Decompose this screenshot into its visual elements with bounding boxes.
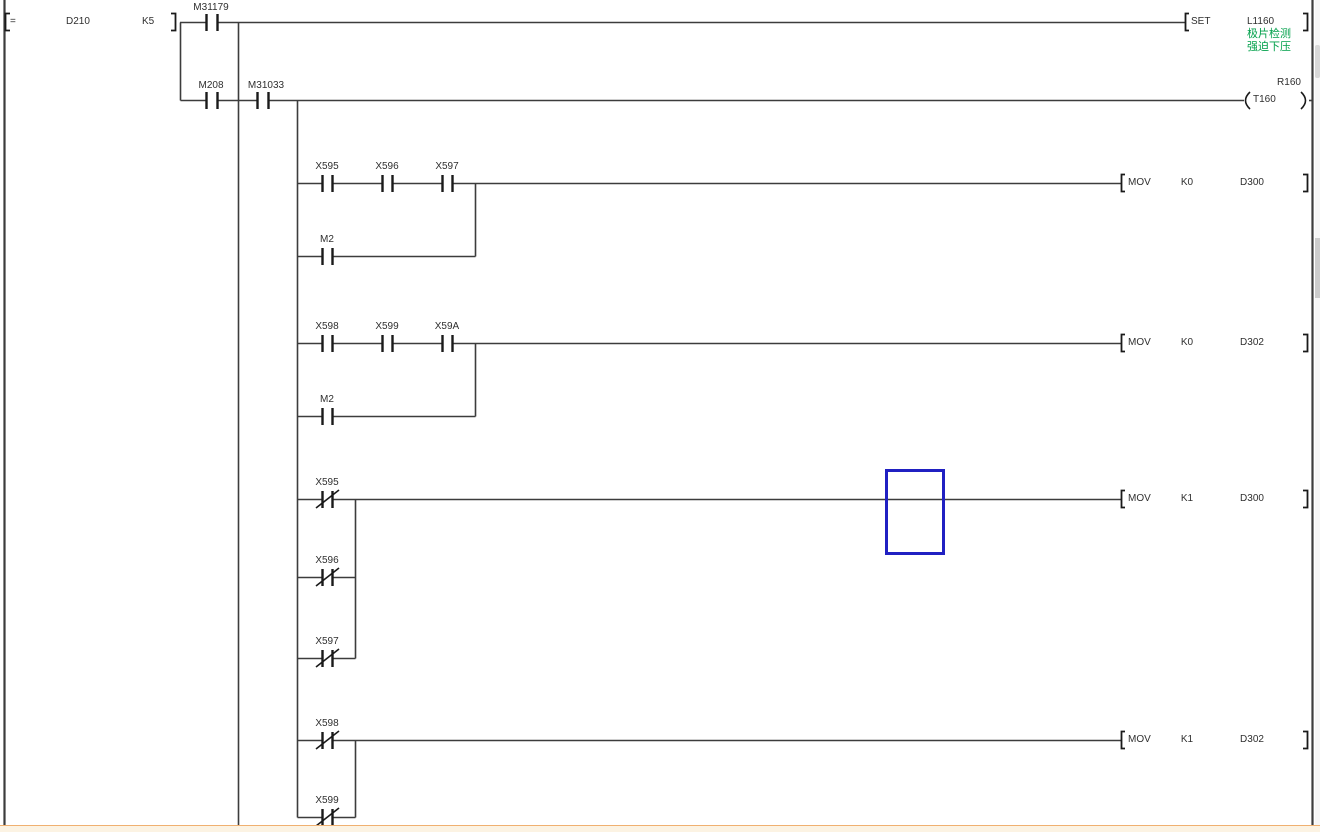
mov3-src[interactable]: K1 [1181,493,1193,505]
contact-m2-a[interactable] [323,248,333,265]
contact-x59a-no[interactable] [443,335,453,352]
device-comment-line1: 极片检测 [1247,28,1291,41]
mov2-src[interactable]: K0 [1181,337,1193,349]
vertical-scrollbar[interactable] [1315,0,1320,832]
contact-label-m31179[interactable]: M31179 [193,2,228,14]
coil-comment-r160: R160 [1277,77,1301,89]
compare-arg2[interactable]: K5 [142,16,154,28]
device-comment-line2: 强迫下压 [1247,41,1291,54]
mov4-src[interactable]: K1 [1181,734,1193,746]
contact-label-x596[interactable]: X596 [375,161,398,173]
contact-label-x598-nc[interactable]: X598 [315,718,338,730]
contact-label-x598[interactable]: X598 [315,321,338,333]
contact-x599-no[interactable] [383,335,393,352]
mov1-instruction[interactable]: MOV [1128,177,1151,189]
contact-x598-no[interactable] [323,335,333,352]
scrollbar-thumb[interactable] [1315,45,1320,78]
power-rails [5,0,1313,826]
compare-arg1[interactable]: D210 [66,16,90,28]
contact-label-m208[interactable]: M208 [198,80,223,92]
bottom-pane-edge [0,825,1320,832]
mov2-dst[interactable]: D302 [1240,337,1264,349]
rung-wires [180,23,1312,827]
ladder-editor-view: = D210 K5 M31179 SET L1160 极片检测 强迫下压 M20… [0,0,1320,832]
contact-m208[interactable] [207,92,218,109]
scrollbar-segment[interactable] [1315,238,1320,298]
coil-operand-t160[interactable]: T160 [1253,94,1276,106]
compare-op[interactable]: = [10,16,16,28]
mov3-instruction[interactable]: MOV [1128,493,1151,505]
contact-x597-no[interactable] [443,175,453,192]
mov3-dst[interactable]: D300 [1240,493,1264,505]
contact-x596-no[interactable] [383,175,393,192]
contact-label-x599[interactable]: X599 [375,321,398,333]
contact-label-x597[interactable]: X597 [435,161,458,173]
contact-x595-no[interactable] [323,175,333,192]
contact-label-x595[interactable]: X595 [315,161,338,173]
ladder-canvas [0,0,1320,832]
contact-label-x595-nc[interactable]: X595 [315,477,338,489]
mov1-dst[interactable]: D300 [1240,177,1264,189]
mov2-instruction[interactable]: MOV [1128,337,1151,349]
contact-m2-b[interactable] [323,408,333,425]
contact-label-x599-nc[interactable]: X599 [315,795,338,807]
set-instruction[interactable]: SET [1191,16,1210,28]
edit-cursor-box[interactable] [887,471,944,554]
contact-m31033[interactable] [258,92,269,109]
contact-label-x596-nc[interactable]: X596 [315,555,338,567]
contact-m31179[interactable] [207,14,218,31]
contact-label-x597-nc[interactable]: X597 [315,636,338,648]
contact-label-x59a[interactable]: X59A [435,321,459,333]
contact-label-m2-a[interactable]: M2 [320,234,334,246]
set-operand[interactable]: L1160 [1247,16,1274,28]
mov4-dst[interactable]: D302 [1240,734,1264,746]
mov1-src[interactable]: K0 [1181,177,1193,189]
contact-label-m2-b[interactable]: M2 [320,394,334,406]
contact-label-m31033[interactable]: M31033 [248,80,284,92]
mov4-instruction[interactable]: MOV [1128,734,1151,746]
